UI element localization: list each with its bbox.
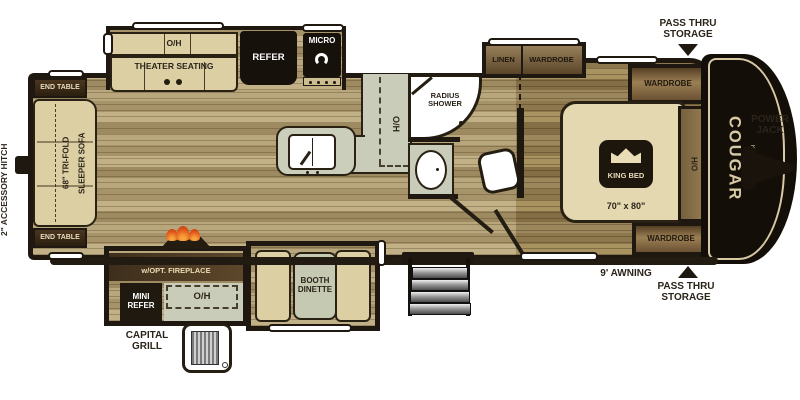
rv-floor-plan: 2" ACCESSORY HITCH END TABLE 68" TRI-FOL…: [0, 0, 800, 400]
cabinet-divider: [190, 34, 191, 54]
ent-center-line2: w/OPT. FIREPLACE: [141, 267, 210, 275]
slide-edge: [48, 70, 84, 78]
counter-divider: [379, 77, 381, 165]
overhead-label: O/H: [166, 39, 181, 49]
sofa-label-line1: 68" TRI-FOLD: [59, 103, 75, 223]
burner-icon: [315, 53, 328, 66]
kitchen-counter: O/H: [361, 74, 412, 174]
capital-grill-icon: [182, 323, 232, 373]
mini-refer-line2: REFER: [127, 302, 154, 311]
end-table-label: END TABLE: [40, 234, 80, 242]
bed-size-label: 70" x 80": [563, 198, 689, 214]
kitchen-island: [276, 126, 356, 176]
slide-edge: [488, 38, 580, 46]
bath-bedroom-wall: [517, 108, 524, 198]
range-knob-icon: [325, 81, 328, 84]
end-table-bottom: END TABLE: [33, 228, 87, 248]
vanity: [408, 143, 454, 196]
king-bed-badge: KING BED: [599, 140, 653, 188]
power-jack-label-line1: POWER: [751, 114, 789, 125]
power-jack-label: POWER JACK: [744, 114, 796, 136]
theater-seating-label: THEATER SEATING: [112, 60, 236, 74]
entry-threshold: [402, 252, 474, 264]
vanity-drain-icon: [436, 168, 439, 171]
pass-thru-bottom-line1: PASS THRU: [657, 281, 714, 292]
sofa-label-line2: SLEEPER SOFA: [75, 103, 91, 223]
crown-icon: [611, 147, 641, 163]
shower-label: RADIUS SHOWER: [415, 87, 475, 113]
dinette-label-line2: DINETTE: [298, 286, 332, 295]
entry-step: [409, 303, 471, 315]
grill-grate: [191, 331, 219, 365]
range-counter: [303, 77, 341, 86]
linen-cabinet-label: LINEN: [486, 46, 521, 74]
counter-overhead-label: O/H: [387, 100, 405, 148]
slide-edge: [48, 252, 84, 260]
cabinet-divider: [164, 34, 165, 54]
accessory-hitch-label: 2" ACCESSORY HITCH: [0, 96, 14, 236]
flame-icon: [176, 226, 190, 241]
awning-arm: [520, 252, 598, 261]
wardrobe-label: WARDROBE: [644, 80, 692, 89]
range-knob-icon: [309, 81, 312, 84]
counter-divider: [379, 165, 409, 167]
wardrobe-bump-label: WARDROBE: [521, 46, 582, 74]
sofa-fold-line: [55, 104, 56, 222]
end-table-top: END TABLE: [33, 78, 87, 98]
entry-step: [410, 291, 470, 303]
arrow-up-icon: [678, 266, 698, 278]
capital-grill-label: CAPITAL GRILL: [116, 330, 178, 352]
cupholder-icon: [176, 79, 182, 85]
pass-thru-bottom-line2: STORAGE: [661, 292, 710, 303]
theater-seating: THEATER SEATING: [110, 56, 238, 92]
refer-label: REFER: [252, 53, 284, 64]
microwave-label: MICRO: [303, 35, 341, 48]
end-table-label: END TABLE: [40, 84, 80, 92]
microwave-range: MICRO: [303, 33, 341, 77]
double-sink: [288, 134, 336, 170]
sink-divider: [312, 138, 313, 166]
slide-edge: [377, 240, 386, 266]
overhead-cabinet-entertainment: O/H: [164, 283, 243, 321]
shower-label-line2: SHOWER: [428, 100, 462, 108]
faucet-icon: [300, 151, 311, 166]
slide-edge: [596, 56, 658, 64]
wardrobe-top: WARDROBE: [628, 64, 708, 104]
king-bed: KING BED 70" x 80": [560, 101, 686, 223]
entry-step: [411, 279, 469, 291]
drain-icon: [459, 121, 463, 125]
wardrobe-label: WARDROBE: [647, 235, 695, 244]
grill-knob-icon: [222, 362, 228, 368]
power-jack-label-line2: JACK: [756, 125, 783, 136]
tri-fold-sleeper-sofa: 68" TRI-FOLD SLEEPER SOFA: [33, 99, 97, 227]
wardrobe-bottom: WARDROBE: [632, 222, 710, 256]
slide-edge: [268, 324, 352, 332]
slide-edge: [302, 24, 344, 32]
bath-wall: [408, 137, 460, 142]
cupholder-icon: [164, 79, 170, 85]
awning-label: 9' AWNING: [588, 268, 664, 279]
pass-thru-top-line2: STORAGE: [663, 29, 712, 40]
arrow-down-icon: [678, 44, 698, 56]
king-bed-label: KING BED: [599, 168, 653, 184]
pass-thru-bottom-label: PASS THRU STORAGE: [638, 281, 734, 303]
entry-step: [412, 267, 468, 279]
slide-edge: [103, 33, 113, 55]
pass-thru-top-label: PASS THRU STORAGE: [640, 18, 736, 40]
sink-knob-icon: [306, 171, 309, 174]
overhead-label: O/H: [194, 292, 211, 303]
overhead-cabinet-theater: O/H: [110, 32, 238, 56]
grill-label-line1: CAPITAL: [126, 330, 169, 341]
flame-icon: [189, 229, 200, 241]
pass-thru-top-line1: PASS THRU: [659, 18, 716, 29]
linen-wardrobe-bump: LINEN WARDROBE: [482, 42, 586, 78]
slide-edge: [132, 22, 224, 30]
range-knob-icon: [333, 81, 336, 84]
overhead-dashed: O/H: [166, 285, 238, 309]
mini-refer: MINI REFER: [120, 283, 162, 321]
range-knob-icon: [317, 81, 320, 84]
booth-dinette-slide: BOOTH DINETTE: [246, 241, 380, 331]
refrigerator: REFER: [240, 31, 297, 85]
vanity-sink: [415, 150, 447, 190]
headboard-overhead-label: H/O: [685, 139, 701, 189]
accessory-hitch-receiver: [15, 156, 30, 174]
sink-knob-icon: [316, 171, 319, 174]
grill-label-line2: GRILL: [132, 341, 162, 352]
